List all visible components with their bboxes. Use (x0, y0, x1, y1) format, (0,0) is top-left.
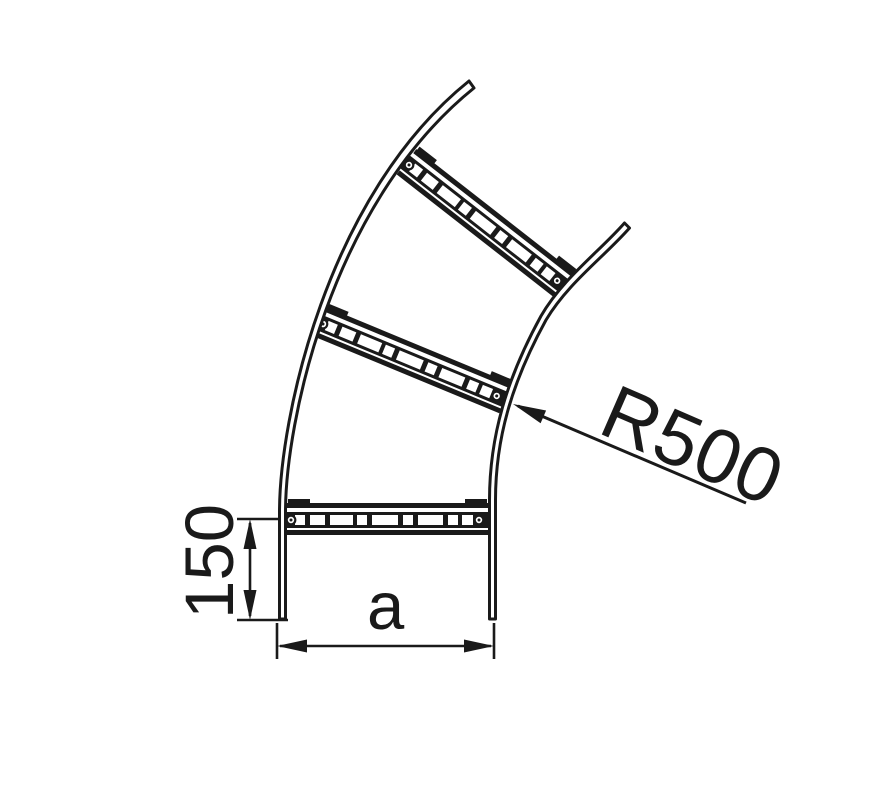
width-dimension: a (277, 569, 494, 659)
drawing-canvas: 150 a R500 (0, 0, 884, 788)
width-dim-label: a (367, 569, 405, 644)
radius-dimension: R500 (513, 369, 796, 523)
rung-middle (309, 301, 518, 415)
width-dim-arrow-right-icon (464, 640, 494, 653)
width-dim-arrow-left-icon (277, 640, 307, 653)
radius-arrow-icon (513, 404, 546, 423)
height-dimension: 150 (171, 504, 288, 620)
radius-dim-label: R500 (589, 369, 796, 523)
height-dim-label: 150 (171, 504, 248, 619)
rung-top (393, 143, 581, 301)
cable-ladder-bend-drawing: 150 a R500 (0, 0, 884, 788)
rung-bottom (282, 499, 493, 535)
